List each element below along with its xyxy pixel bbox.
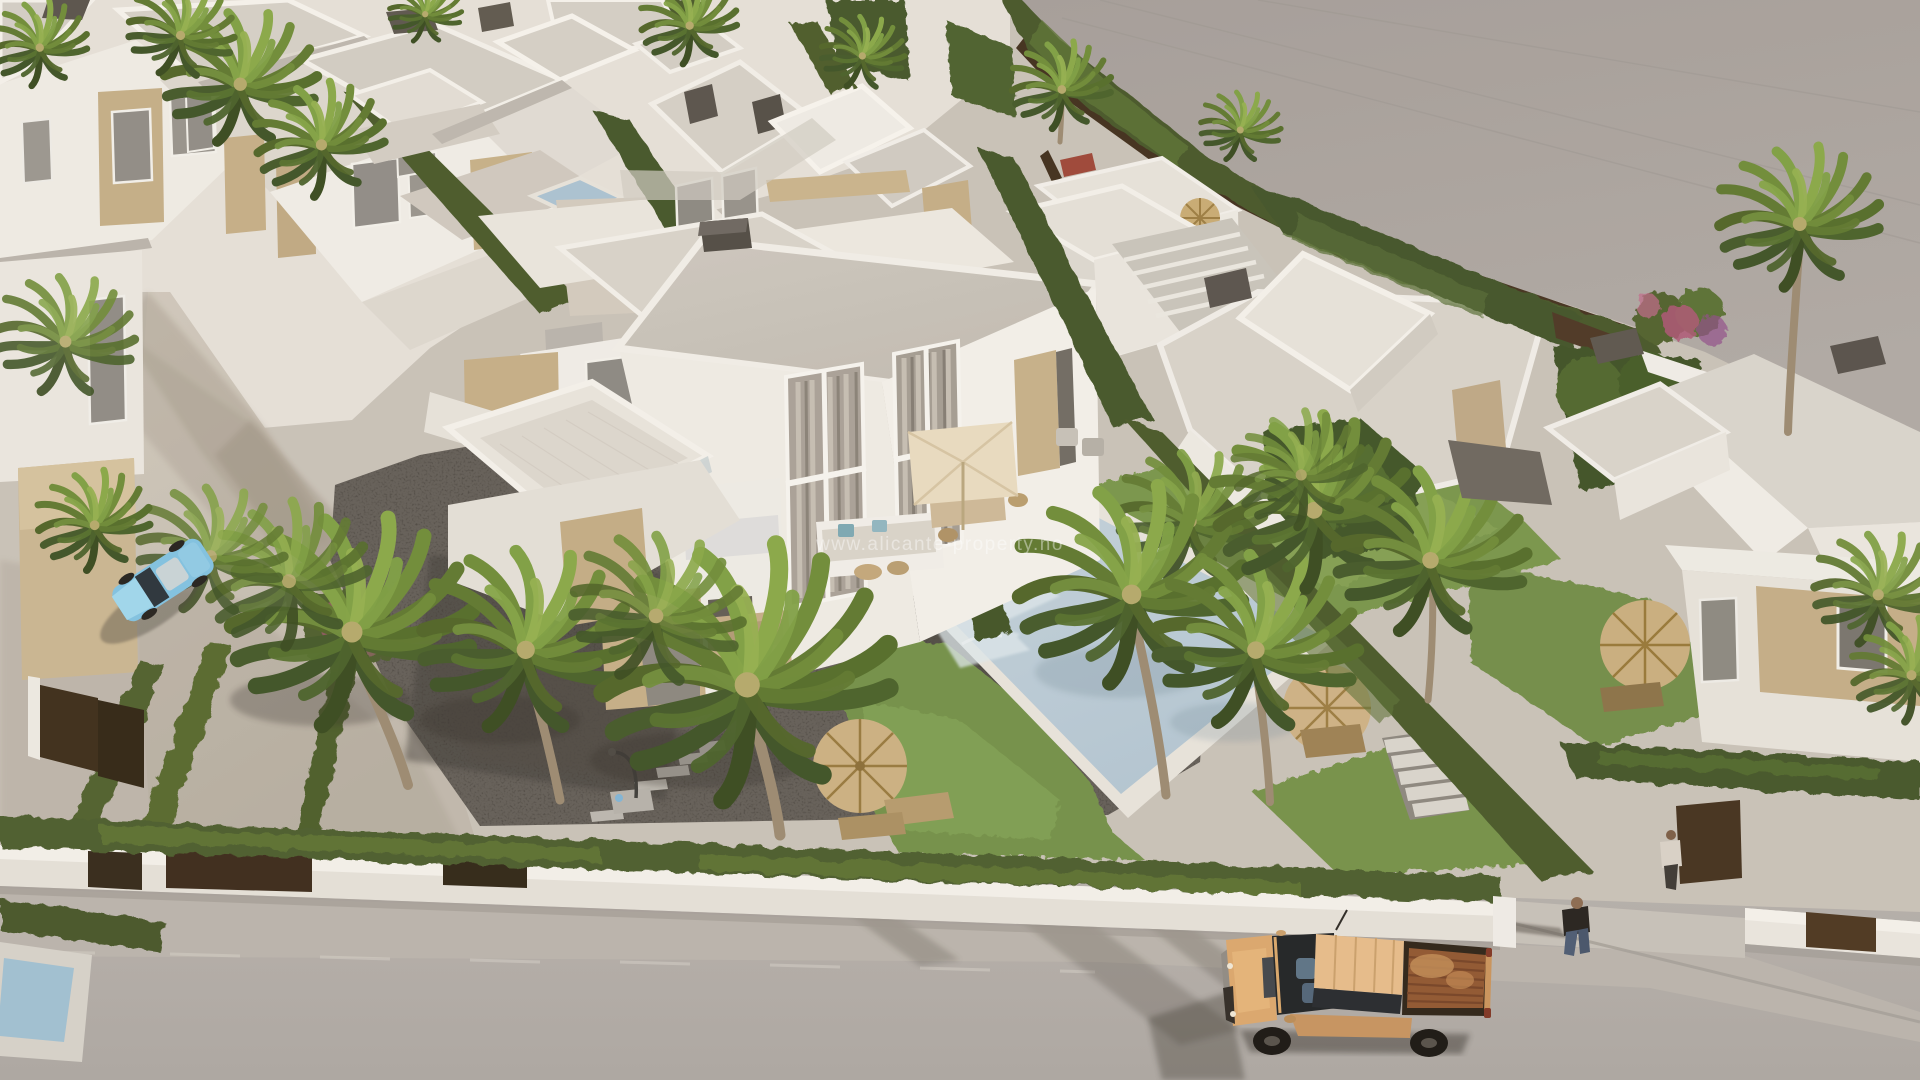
svg-text:www.alicante-property.no: www.alicante-property.no <box>815 534 1064 555</box>
